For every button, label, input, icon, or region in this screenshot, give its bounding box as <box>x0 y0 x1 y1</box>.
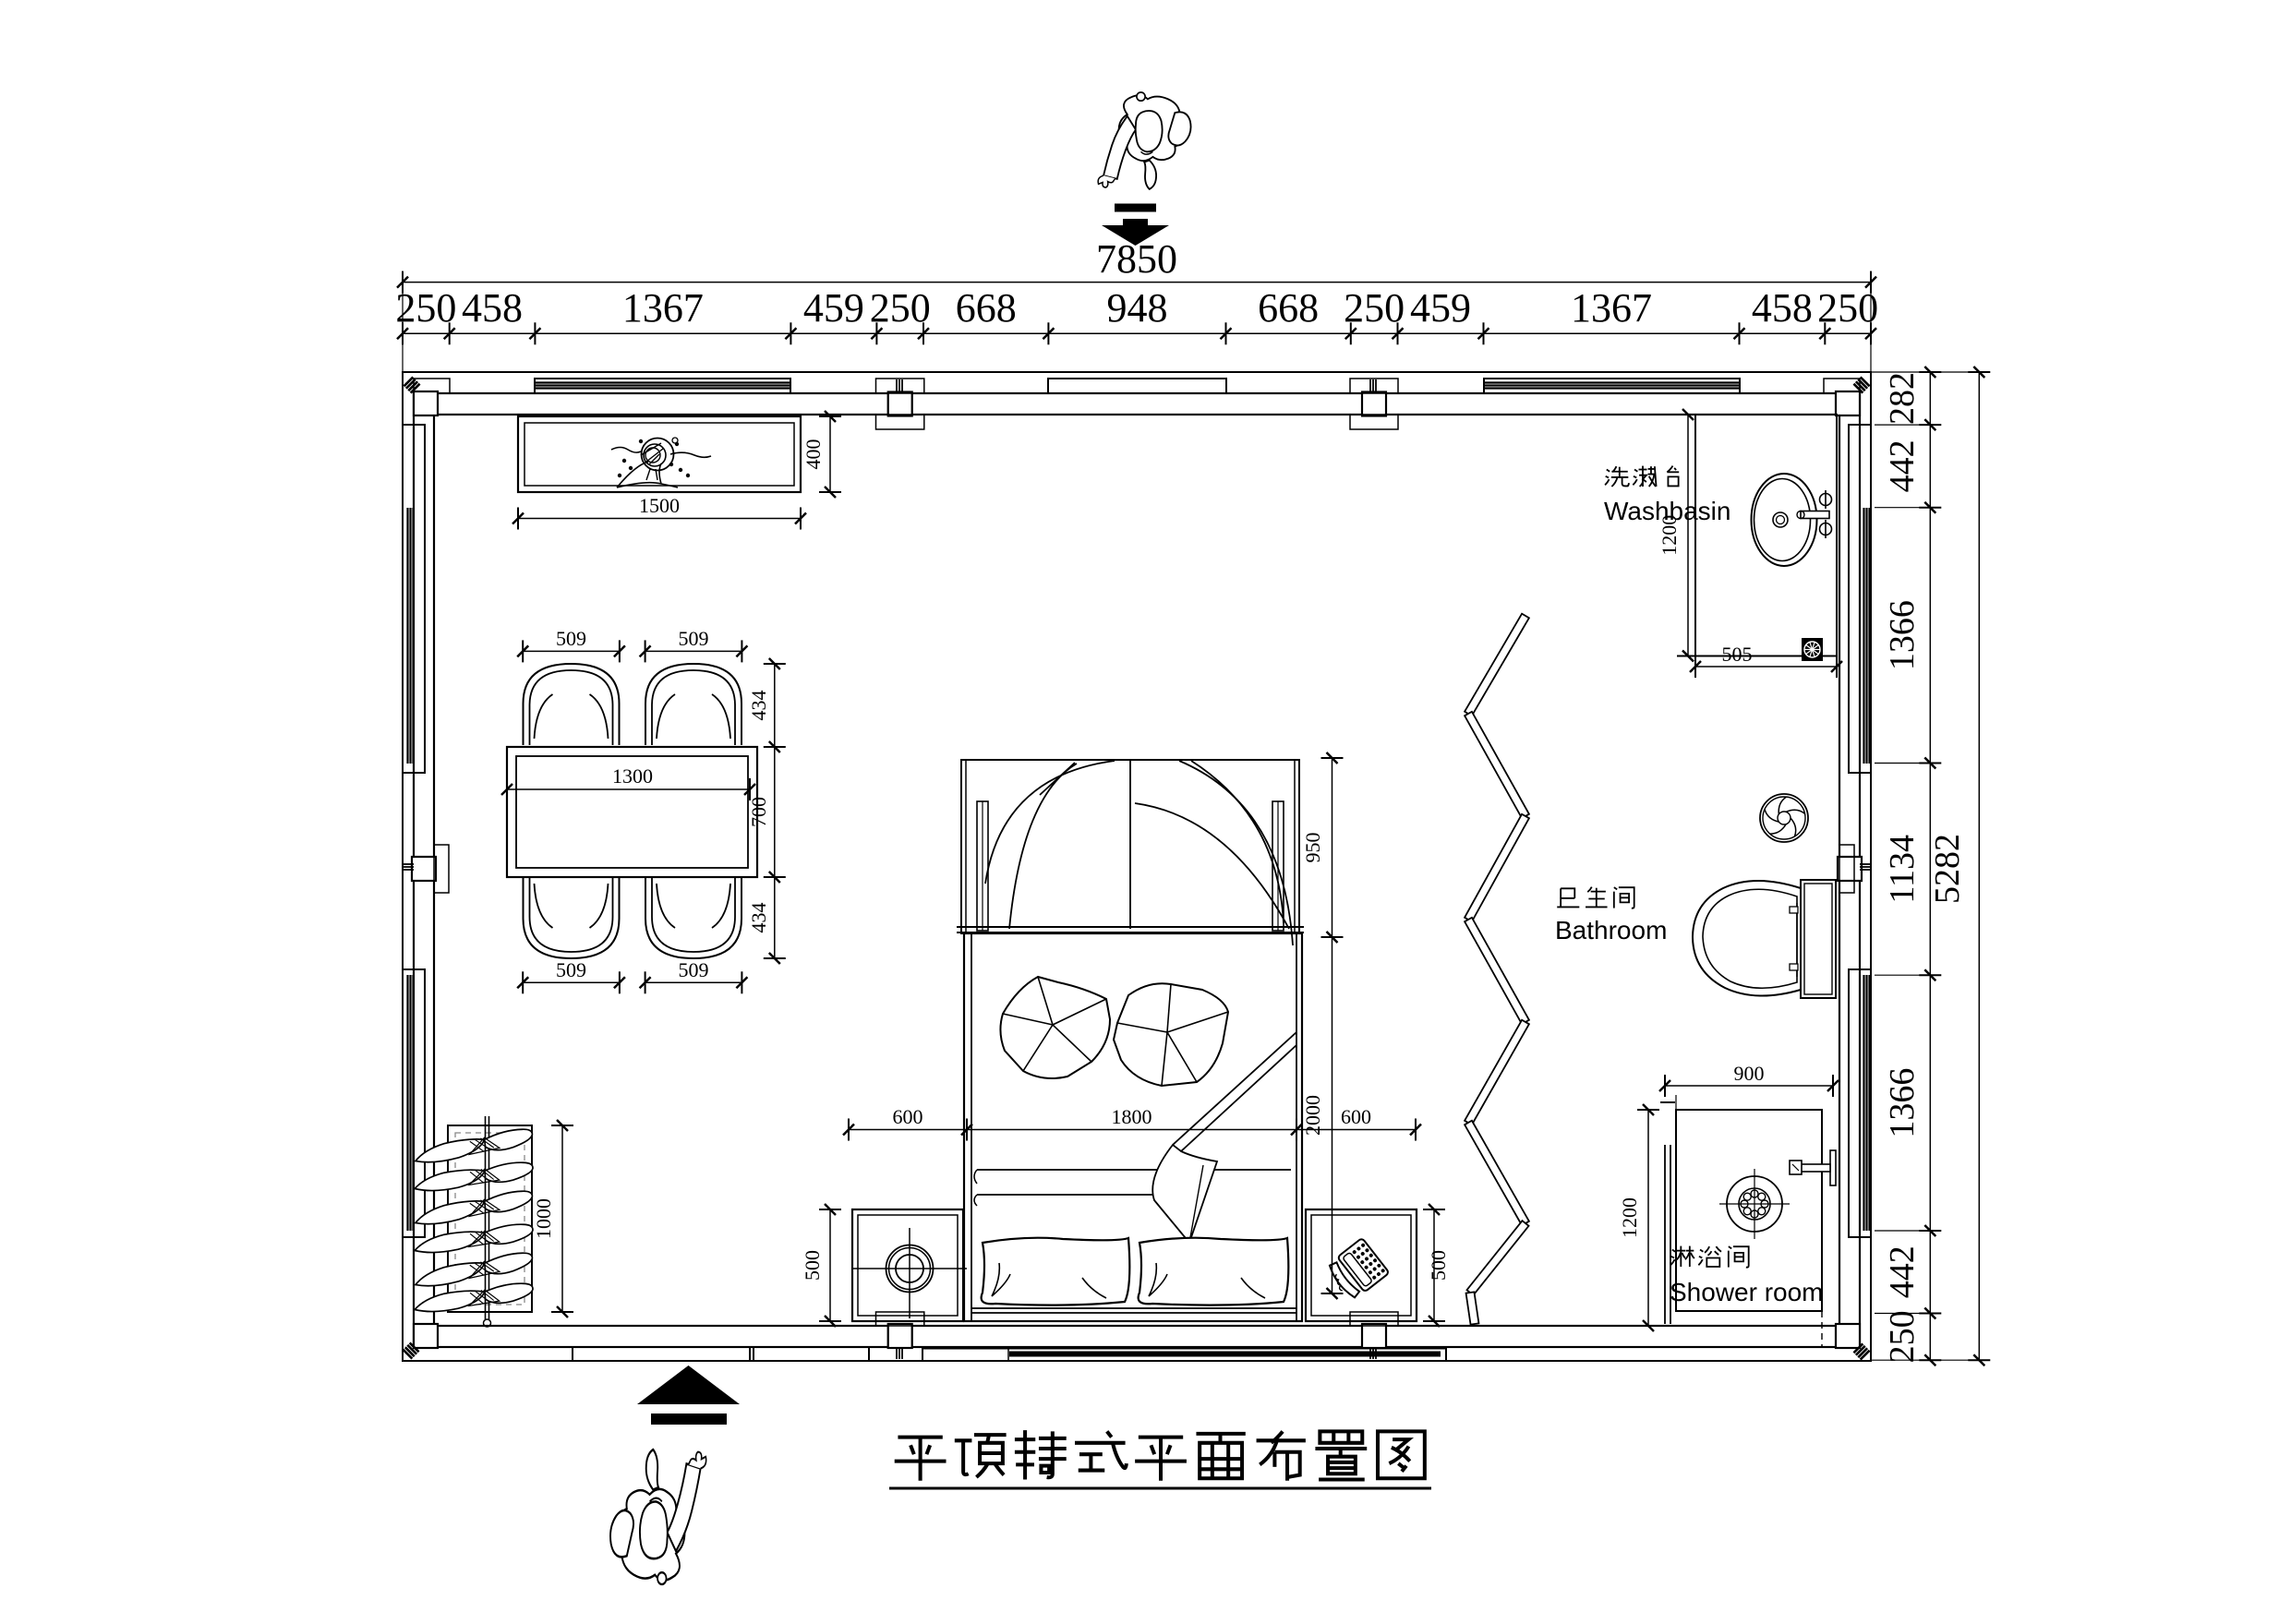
svg-text:442: 442 <box>1883 439 1922 492</box>
svg-text:1500: 1500 <box>639 494 680 517</box>
svg-text:950: 950 <box>1301 833 1324 863</box>
svg-text:1200: 1200 <box>1618 1197 1641 1238</box>
svg-text:458: 458 <box>1752 285 1813 331</box>
svg-text:2000: 2000 <box>1301 1095 1324 1136</box>
svg-text:250: 250 <box>870 285 931 331</box>
svg-text:900: 900 <box>1734 1062 1765 1085</box>
svg-text:509: 509 <box>556 627 586 650</box>
svg-text:1366: 1366 <box>1883 600 1922 670</box>
svg-text:Shower room: Shower room <box>1670 1278 1824 1306</box>
svg-text:500: 500 <box>801 1250 824 1281</box>
svg-text:509: 509 <box>556 958 586 981</box>
svg-text:Bathroom: Bathroom <box>1555 916 1667 944</box>
svg-text:400: 400 <box>802 439 825 470</box>
svg-text:1367: 1367 <box>1571 285 1652 331</box>
svg-text:250: 250 <box>1883 1310 1922 1363</box>
svg-text:1134: 1134 <box>1883 835 1922 904</box>
svg-text:5282: 5282 <box>1928 834 1967 904</box>
svg-text:459: 459 <box>803 285 864 331</box>
svg-text:509: 509 <box>679 958 709 981</box>
svg-text:1367: 1367 <box>622 285 704 331</box>
svg-text:250: 250 <box>1817 285 1878 331</box>
svg-text:1366: 1366 <box>1883 1068 1922 1138</box>
svg-text:700: 700 <box>747 797 770 827</box>
svg-text:434: 434 <box>747 903 770 933</box>
svg-text:434: 434 <box>747 691 770 721</box>
svg-text:668: 668 <box>956 285 1017 331</box>
svg-text:948: 948 <box>1106 285 1167 331</box>
svg-text:600: 600 <box>893 1105 923 1128</box>
svg-text:442: 442 <box>1883 1245 1922 1298</box>
svg-text:600: 600 <box>1341 1105 1371 1128</box>
svg-text:505: 505 <box>1722 643 1753 666</box>
svg-text:1800: 1800 <box>1112 1105 1152 1128</box>
svg-text:500: 500 <box>1427 1250 1450 1281</box>
svg-text:1000: 1000 <box>532 1198 555 1239</box>
svg-text:458: 458 <box>462 285 523 331</box>
svg-text:282: 282 <box>1883 372 1922 425</box>
svg-text:459: 459 <box>1410 285 1471 331</box>
svg-text:509: 509 <box>679 627 709 650</box>
svg-text:250: 250 <box>1344 285 1405 331</box>
svg-text:668: 668 <box>1258 285 1319 331</box>
svg-text:250: 250 <box>395 285 456 331</box>
svg-text:1300: 1300 <box>612 764 653 788</box>
svg-text:Washbasin: Washbasin <box>1604 497 1730 525</box>
